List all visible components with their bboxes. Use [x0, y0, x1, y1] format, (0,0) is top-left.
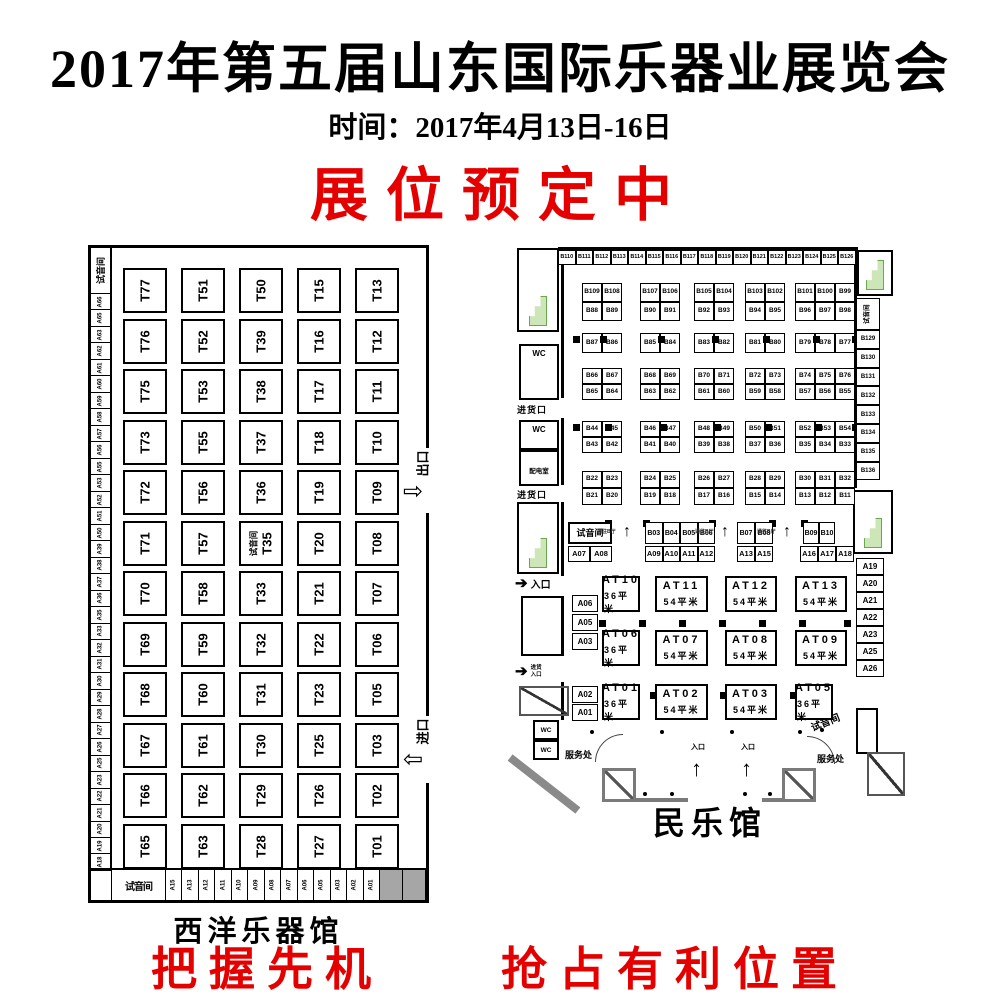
- booth-t33: T33: [239, 571, 283, 616]
- booth-id: AT07: [662, 634, 700, 646]
- booth-t23: T23: [297, 672, 341, 717]
- booth-label: T29: [254, 784, 269, 806]
- pillar: [712, 336, 719, 343]
- booth-a18-label: A18: [838, 550, 852, 558]
- booth-t02: T02: [355, 773, 399, 818]
- booth-b26-label: B26: [698, 476, 710, 483]
- booth-label: T25: [312, 734, 327, 756]
- booth-b78-label: B78: [819, 340, 831, 347]
- booth-b58: B58: [765, 384, 785, 400]
- booth-b123: B123: [786, 250, 804, 265]
- booth-b130-label: B130: [861, 355, 875, 361]
- booth-a25: A25: [856, 643, 884, 660]
- booth-b28: B28: [745, 471, 765, 488]
- booth-b74: B74: [795, 368, 815, 384]
- booth-a31: A31: [91, 657, 110, 673]
- booth-label: T60: [196, 683, 211, 705]
- booth-a26: A26: [856, 660, 884, 677]
- booth-label: T32: [254, 633, 269, 655]
- booth-b62: B62: [660, 384, 680, 400]
- passage-arrow-icon: ↑: [623, 524, 631, 540]
- booth-a02-label: A02: [578, 691, 593, 699]
- booth-label: A37: [97, 576, 103, 587]
- booth-a22-label: A22: [863, 614, 878, 622]
- booth-b91: B91: [660, 302, 680, 321]
- booth-label: T26: [312, 784, 327, 806]
- booth-b29-label: B29: [769, 476, 781, 483]
- booth-b135-label: B135: [861, 449, 875, 455]
- booth-a28: A28: [91, 706, 110, 722]
- booth-b38: B38: [714, 437, 734, 453]
- booth-label: T18: [312, 431, 327, 453]
- booth-label: T28: [254, 835, 269, 857]
- pillar: [660, 424, 667, 431]
- booth-label: T66: [138, 784, 153, 806]
- booth-b91-label: B91: [664, 308, 676, 315]
- booth-at07: AT0754平米: [655, 630, 708, 666]
- booth-t60: T60: [181, 672, 225, 717]
- booth-t57: T57: [181, 521, 225, 566]
- booth-b15: B15: [745, 488, 765, 505]
- booth-b135: B135: [856, 443, 880, 462]
- booth-b59-label: B59: [749, 389, 761, 396]
- booth-label: T36: [254, 481, 269, 503]
- booth-t59: T59: [181, 622, 225, 667]
- booth-b32: B32: [835, 471, 855, 488]
- booth-size: 54平米: [663, 703, 699, 716]
- booth-size: 54平米: [803, 595, 839, 608]
- booth-at13: AT1354平米: [795, 576, 847, 612]
- wc-room: WC: [533, 720, 559, 740]
- booth-b32-label: B32: [839, 476, 851, 483]
- booth-b108: B108: [602, 283, 622, 302]
- booth-b85: B85: [640, 333, 660, 353]
- booth-b107: B107: [640, 283, 660, 302]
- booth-label: T56: [196, 481, 211, 503]
- booth-a51: A51: [91, 508, 110, 524]
- booth-a08: A08: [265, 870, 281, 900]
- west-bottom-booth-strip: 试音间 A15A13A12A11A10A09A08A07A06A05A03A02…: [91, 868, 426, 900]
- booth-a09: A09: [645, 546, 663, 562]
- booth-label: A09: [253, 879, 259, 890]
- booth-label: A13: [187, 879, 193, 890]
- booth-label: T12: [370, 330, 385, 352]
- booth-a06: A06: [298, 870, 314, 900]
- booth-label: T72: [138, 481, 153, 503]
- booth-b81-label: B81: [749, 340, 761, 347]
- booth-label: A02: [352, 879, 358, 890]
- wc-label: WC: [532, 349, 545, 358]
- booth-b65-label: B65: [586, 389, 598, 396]
- service-door-arc: [595, 734, 623, 762]
- booth-b111: B111: [576, 250, 594, 265]
- booth-t61: T61: [181, 723, 225, 768]
- booth-b89-label: B89: [606, 308, 618, 315]
- booth-b54-label: B54: [839, 426, 851, 433]
- booth-b74-label: B74: [799, 373, 811, 380]
- booth-b120-label: B120: [735, 255, 748, 261]
- booth-a03-label: A03: [578, 638, 593, 646]
- booth-b73-label: B73: [769, 373, 781, 380]
- booth-b105: B105: [694, 283, 714, 302]
- booth-a25-label: A25: [863, 648, 878, 656]
- booth-b41-label: B41: [644, 442, 656, 449]
- booth-a21-label: A21: [863, 597, 878, 605]
- booth-b07-label: B07: [740, 530, 753, 537]
- booth-label: T11: [370, 381, 385, 403]
- strip-corner: [91, 870, 112, 900]
- booth-b36: B36: [765, 437, 785, 453]
- booth-b82-label: B82: [718, 340, 730, 347]
- booth-b121: B121: [751, 250, 769, 265]
- booth-b55-label: B55: [839, 389, 851, 396]
- stairwell: [853, 490, 893, 554]
- booth-b36-label: B36: [769, 442, 781, 449]
- booth-a09-label: A09: [647, 550, 661, 558]
- booth-label: A38: [97, 560, 103, 571]
- column-dot: [768, 792, 772, 796]
- booth-b13-label: B13: [799, 493, 811, 500]
- goods-gate-label: 进货口: [517, 403, 547, 416]
- booth-at08: AT0854平米: [725, 630, 777, 666]
- booth-label: A50: [97, 527, 103, 538]
- service-desk-label: 服务处: [565, 748, 592, 761]
- booth-size: 54平米: [663, 649, 699, 662]
- booth-b75-label: B75: [819, 373, 831, 380]
- booth-b100-label: B100: [817, 289, 833, 296]
- booth-label: A05: [319, 879, 325, 890]
- booth-t12: T12: [355, 319, 399, 364]
- booth-b101: B101: [795, 283, 815, 302]
- booth-a11: A11: [680, 546, 698, 562]
- booth-size: 54平米: [733, 595, 769, 608]
- booth-b131-label: B131: [861, 374, 875, 380]
- booth-a12: A12: [199, 870, 215, 900]
- booth-b115: B115: [646, 250, 664, 265]
- booth-b19-label: B19: [644, 493, 656, 500]
- booth-b106-label: B106: [662, 289, 678, 296]
- booth-label: T13: [370, 279, 385, 301]
- booth-id: AT13: [802, 580, 840, 592]
- booth-id: AT09: [802, 634, 840, 646]
- booth-b124: B124: [803, 250, 821, 265]
- booth-label: A10: [237, 879, 243, 890]
- booth-t15: T15: [297, 268, 341, 313]
- booth-b117: B117: [681, 250, 699, 265]
- booth-t51: T51: [181, 268, 225, 313]
- booth-b117-label: B117: [683, 255, 696, 261]
- booth-t11: T11: [355, 369, 399, 414]
- booth-a36: A36: [91, 591, 110, 607]
- goods-entrance-label: 进货入口: [531, 665, 547, 677]
- stairwell: [517, 502, 559, 574]
- booth-at12: AT1254平米: [725, 576, 777, 612]
- booth-b07: B07: [737, 522, 755, 544]
- booth-label: T08: [370, 532, 385, 554]
- booth-b99-label: B99: [839, 289, 851, 296]
- booth-b85-label: B85: [644, 340, 656, 347]
- entrance-label-text: 进口: [413, 718, 432, 744]
- booth-b76-label: B76: [839, 373, 851, 380]
- booth-t69: T69: [123, 622, 167, 667]
- booth-label: A18: [97, 857, 103, 868]
- booth-a32: A32: [91, 640, 110, 656]
- booth-label: T07: [370, 582, 385, 604]
- booth-b60-label: B60: [718, 389, 730, 396]
- booth-t32: T32: [239, 622, 283, 667]
- booth-b57-label: B57: [799, 389, 811, 396]
- booth-size: 54平米: [733, 649, 769, 662]
- booth-label: T65: [138, 835, 153, 857]
- booth-label: T09: [370, 481, 385, 503]
- booth-b09-label: B09: [805, 530, 818, 537]
- booth-b23-label: B23: [606, 476, 618, 483]
- booth-b105-label: B105: [696, 289, 712, 296]
- booth-a02: A02: [572, 686, 598, 703]
- entrance-label: 入口: [531, 576, 551, 591]
- booth-a63: A63: [91, 327, 110, 343]
- booth-t75: T75: [123, 369, 167, 414]
- booth-b129-label: B129: [861, 336, 875, 342]
- booth-b122-label: B122: [770, 255, 783, 261]
- booth-b33: B33: [835, 437, 855, 453]
- booth-b14-label: B14: [769, 493, 781, 500]
- booth-label: A08: [270, 879, 276, 890]
- booth-b64: B64: [602, 384, 622, 400]
- pillar: [719, 620, 726, 627]
- column-dot: [590, 730, 594, 734]
- booth-b104: B104: [714, 283, 734, 302]
- booth-b20: B20: [602, 488, 622, 505]
- booth-b16: B16: [714, 488, 734, 505]
- booth-a22: A22: [856, 609, 884, 626]
- booth-id: AT06: [602, 628, 640, 640]
- booth-b72-label: B72: [749, 373, 761, 380]
- booth-a21: A21: [91, 805, 110, 821]
- booth-label: T75: [138, 380, 153, 402]
- booth-a19-label: A19: [863, 563, 878, 571]
- booth-label: A21: [97, 807, 103, 818]
- booth-b87-label: B87: [586, 340, 598, 347]
- booth-b129: B129: [856, 330, 880, 349]
- booth-a27: A27: [91, 723, 110, 739]
- booth-a03: A03: [572, 633, 598, 650]
- passage-label: 通往B厅: [757, 528, 776, 535]
- booth-t31: T31: [239, 672, 283, 717]
- booth-b17-label: B17: [698, 493, 710, 500]
- booth-b104-label: B104: [716, 289, 732, 296]
- booth-label: A60: [97, 379, 103, 390]
- stairwell: [857, 250, 893, 296]
- booth-b33-label: B33: [839, 442, 851, 449]
- booth-b48-label: B48: [698, 426, 710, 433]
- wc-room: WC: [519, 420, 559, 450]
- booth-label: A03: [335, 879, 341, 890]
- booth-b106: B106: [660, 283, 680, 302]
- booth-a07-label: A07: [572, 550, 586, 558]
- west-booth-grid: T77T51T50T15T13T76T52T39T16T12T75T53T38T…: [123, 268, 399, 869]
- service-desk-label: 服务处: [817, 752, 844, 765]
- booth-b18: B18: [660, 488, 680, 505]
- booth-note: 试音间: [247, 530, 259, 556]
- booth-label: T57: [196, 532, 211, 554]
- booth-b64-label: B64: [606, 389, 618, 396]
- booth-at09: AT0954平米: [795, 630, 847, 666]
- booth-label: T06: [370, 633, 385, 655]
- booth-label: A55: [97, 461, 103, 472]
- booth-b30-label: B30: [799, 476, 811, 483]
- booth-b19: B19: [640, 488, 660, 505]
- passage-arrow-icon: ↑: [783, 524, 791, 540]
- booth-t17: T17: [297, 369, 341, 414]
- booth-b31: B31: [815, 471, 835, 488]
- booth-a35: A35: [91, 607, 110, 623]
- booth-label: T63: [196, 835, 211, 857]
- booth-t25: T25: [297, 723, 341, 768]
- escalator: [867, 752, 905, 796]
- booth-b34-label: B34: [819, 442, 831, 449]
- booth-label: T30: [254, 734, 269, 756]
- booth-a17-label: A17: [820, 550, 834, 558]
- booth-label: T59: [196, 633, 211, 655]
- stairs-icon: [864, 518, 882, 548]
- booth-b120: B120: [733, 250, 751, 265]
- booth-a55: A55: [91, 459, 110, 475]
- booth-b46: B46: [640, 421, 660, 437]
- booth-a58: A58: [91, 409, 110, 425]
- booth-b96-label: B96: [799, 308, 811, 315]
- booth-b56-label: B56: [819, 389, 831, 396]
- booth-b40-label: B40: [664, 442, 676, 449]
- booth-a01: A01: [364, 870, 380, 900]
- booth-b96: B96: [795, 302, 815, 321]
- booth-b114: B114: [628, 250, 646, 265]
- booth-b112: B112: [593, 250, 611, 265]
- booth-b109-label: B109: [584, 289, 600, 296]
- power-room: 配电室: [519, 450, 559, 486]
- booth-a20-label: A20: [863, 580, 878, 588]
- booth-b92-label: B92: [698, 308, 710, 315]
- booth-t66: T66: [123, 773, 167, 818]
- booth-b68-label: B68: [644, 373, 656, 380]
- booth-a08: A08: [590, 546, 612, 562]
- booth-b39: B39: [694, 437, 714, 453]
- booth-label: T15: [312, 279, 327, 301]
- booth-a07: A07: [281, 870, 297, 900]
- booth-b88-label: B88: [586, 308, 598, 315]
- booth-id: AT02: [662, 688, 700, 700]
- blocked-cell: [380, 870, 403, 900]
- booth-a13: A13: [182, 870, 198, 900]
- booth-b38-label: B38: [718, 442, 730, 449]
- escalator: [602, 768, 636, 802]
- booth-a12: A12: [698, 546, 716, 562]
- booth-b136-label: B136: [861, 468, 875, 474]
- booth-b126-label: B126: [840, 255, 853, 261]
- booth-b24-label: B24: [644, 476, 656, 483]
- booth-b67: B67: [602, 368, 622, 384]
- booth-b111-label: B111: [578, 255, 591, 261]
- blocked-cell: [403, 870, 426, 900]
- column-dot: [730, 730, 734, 734]
- booth-a09: A09: [248, 870, 264, 900]
- booking-banner: 展位预定中: [0, 148, 1000, 232]
- booth-b133: B133: [856, 405, 880, 424]
- booth-b119: B119: [716, 250, 734, 265]
- booth-b50-label: B50: [749, 426, 761, 433]
- booth-label: A32: [97, 642, 103, 653]
- booth-b63: B63: [640, 384, 660, 400]
- booth-a07: A07: [568, 546, 590, 562]
- booth-label: T55: [196, 431, 211, 453]
- booth-label: A27: [97, 725, 103, 736]
- booth-a61: A61: [91, 360, 110, 376]
- escalator: [519, 686, 569, 716]
- booth-b17: B17: [694, 488, 714, 505]
- booth-b11-label: B11: [839, 493, 851, 500]
- booth-a65: A65: [91, 310, 110, 326]
- booth-t76: T76: [123, 319, 167, 364]
- listening-room: 试音间: [112, 870, 166, 900]
- booth-at10: AT1036平米: [602, 576, 640, 612]
- booth-a20: A20: [91, 822, 110, 838]
- booth-b101-label: B101: [797, 289, 813, 296]
- booth-label: 试音间T35: [247, 530, 274, 556]
- booth-t21: T21: [297, 571, 341, 616]
- booth-id: AT11: [663, 580, 700, 592]
- listening-room-label: 试音间: [94, 257, 107, 284]
- booth-b48: B48: [694, 421, 714, 437]
- booth-label: T51: [196, 279, 211, 301]
- booth-t03: T03: [355, 723, 399, 768]
- booth-b20-label: B20: [606, 493, 618, 500]
- booth-t29: T29: [239, 773, 283, 818]
- column-dot: [643, 792, 647, 796]
- booth-label: A31: [97, 659, 103, 670]
- booth-b116: B116: [663, 250, 681, 265]
- booth-size: 36平米: [604, 589, 638, 615]
- column-dot: [798, 730, 802, 734]
- booth-b39-label: B39: [698, 442, 710, 449]
- booth-b43: B43: [582, 437, 602, 453]
- booth-b94: B94: [745, 302, 765, 321]
- booth-b14: B14: [765, 488, 785, 505]
- booth-b67-label: B67: [606, 373, 618, 380]
- booth-a15: A15: [755, 546, 773, 562]
- booth-b26: B26: [694, 471, 714, 488]
- booth-a59: A59: [91, 393, 110, 409]
- listening-room: 试音间: [856, 298, 880, 330]
- booth-size: 54平米: [803, 649, 839, 662]
- booth-label: T01: [370, 835, 385, 857]
- booth-b124-label: B124: [805, 255, 818, 261]
- booth-a01-label: A01: [578, 709, 593, 717]
- booth-label: T58: [196, 582, 211, 604]
- booth-t08: T08: [355, 521, 399, 566]
- pillar: [799, 620, 806, 627]
- booth-label: A20: [97, 824, 103, 835]
- booth-b65: B65: [582, 384, 602, 400]
- page-title: 2017年第五届山东国际乐器业展览会: [0, 24, 1000, 103]
- booth-at03: AT0354平米: [725, 684, 777, 720]
- passage-label: 通往B厅: [695, 528, 714, 535]
- booth-label: A62: [97, 346, 103, 357]
- booth-a13: A13: [737, 546, 755, 562]
- booth-b84-label: B84: [664, 340, 676, 347]
- booth-a15: A15: [166, 870, 182, 900]
- booth-b04-label: B04: [665, 530, 678, 537]
- side-room: [521, 596, 563, 656]
